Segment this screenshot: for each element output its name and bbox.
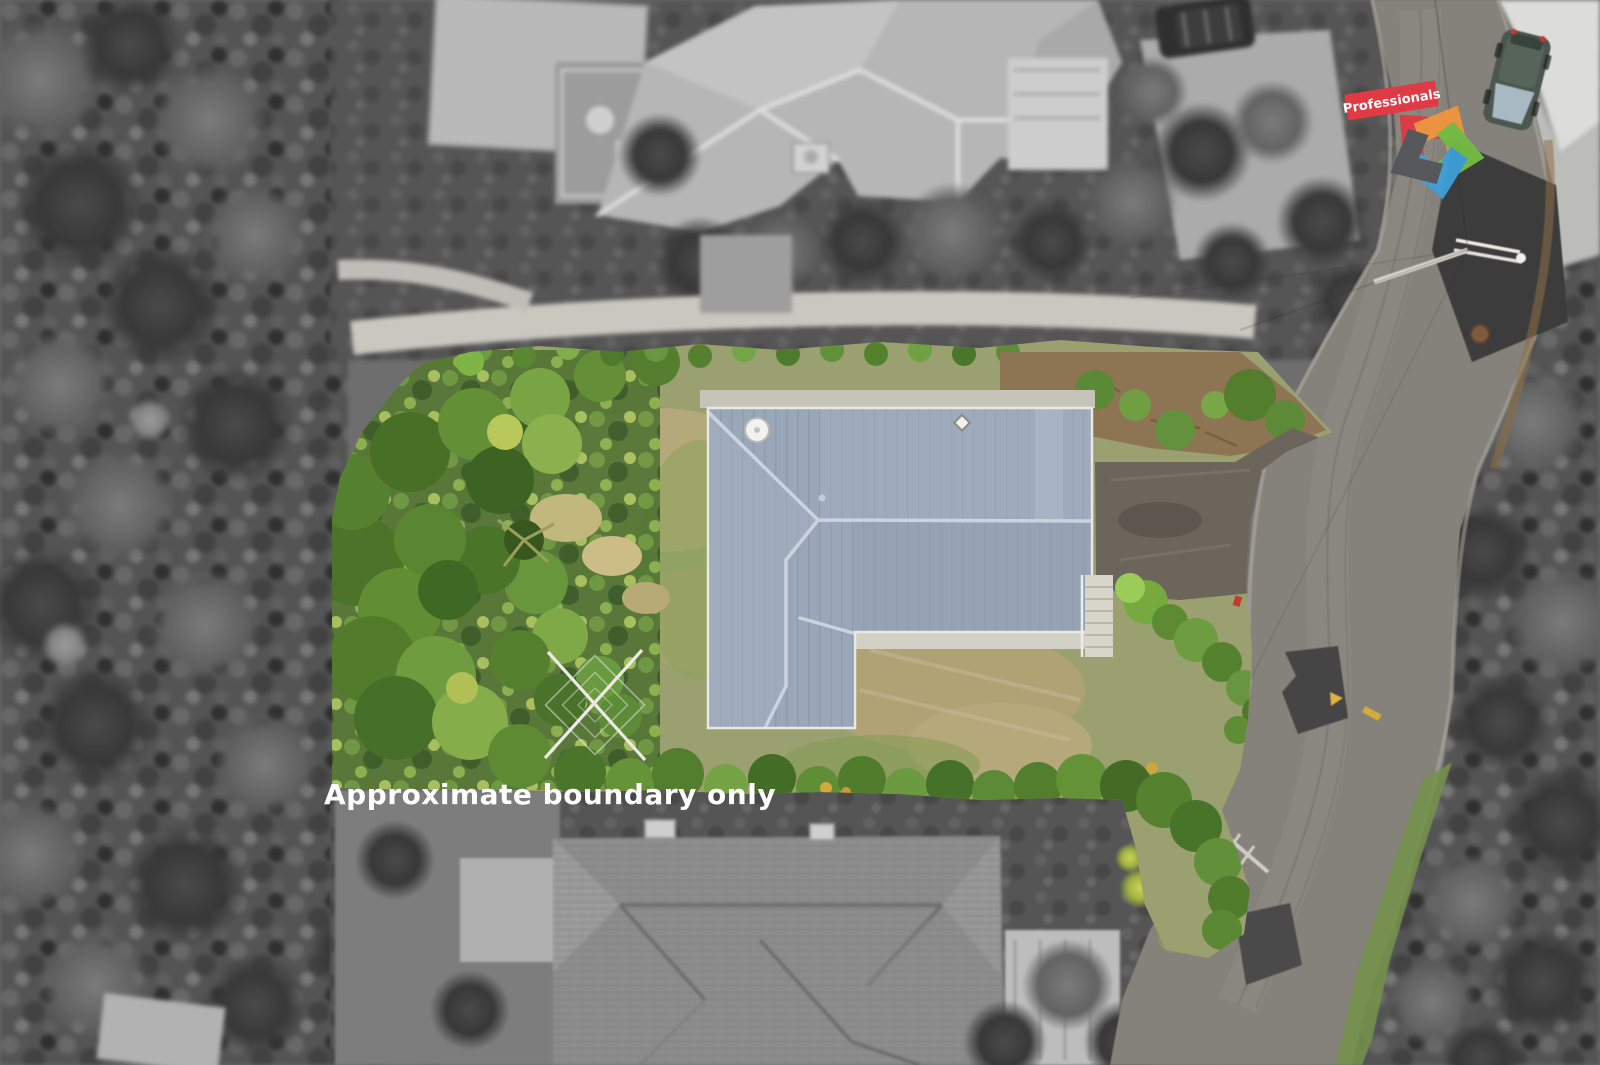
path-behind-house [700, 390, 1095, 408]
neighbor-annex [460, 858, 562, 962]
steps [1082, 575, 1113, 657]
logo-banner: Professionals [1341, 80, 1443, 121]
foundation-strip [855, 633, 1092, 649]
watermark-text: Approximate boundary only [324, 778, 776, 811]
patio [700, 235, 792, 313]
professionals-logo: Professionals [1338, 42, 1523, 217]
chimney [645, 820, 675, 838]
aerial-property-photo: Approximate boundary only Professionals [0, 0, 1600, 1065]
chimney [810, 824, 834, 840]
manhole [1471, 325, 1489, 343]
neighbor-balcony [1008, 58, 1108, 170]
roof-vent-small [819, 495, 826, 502]
